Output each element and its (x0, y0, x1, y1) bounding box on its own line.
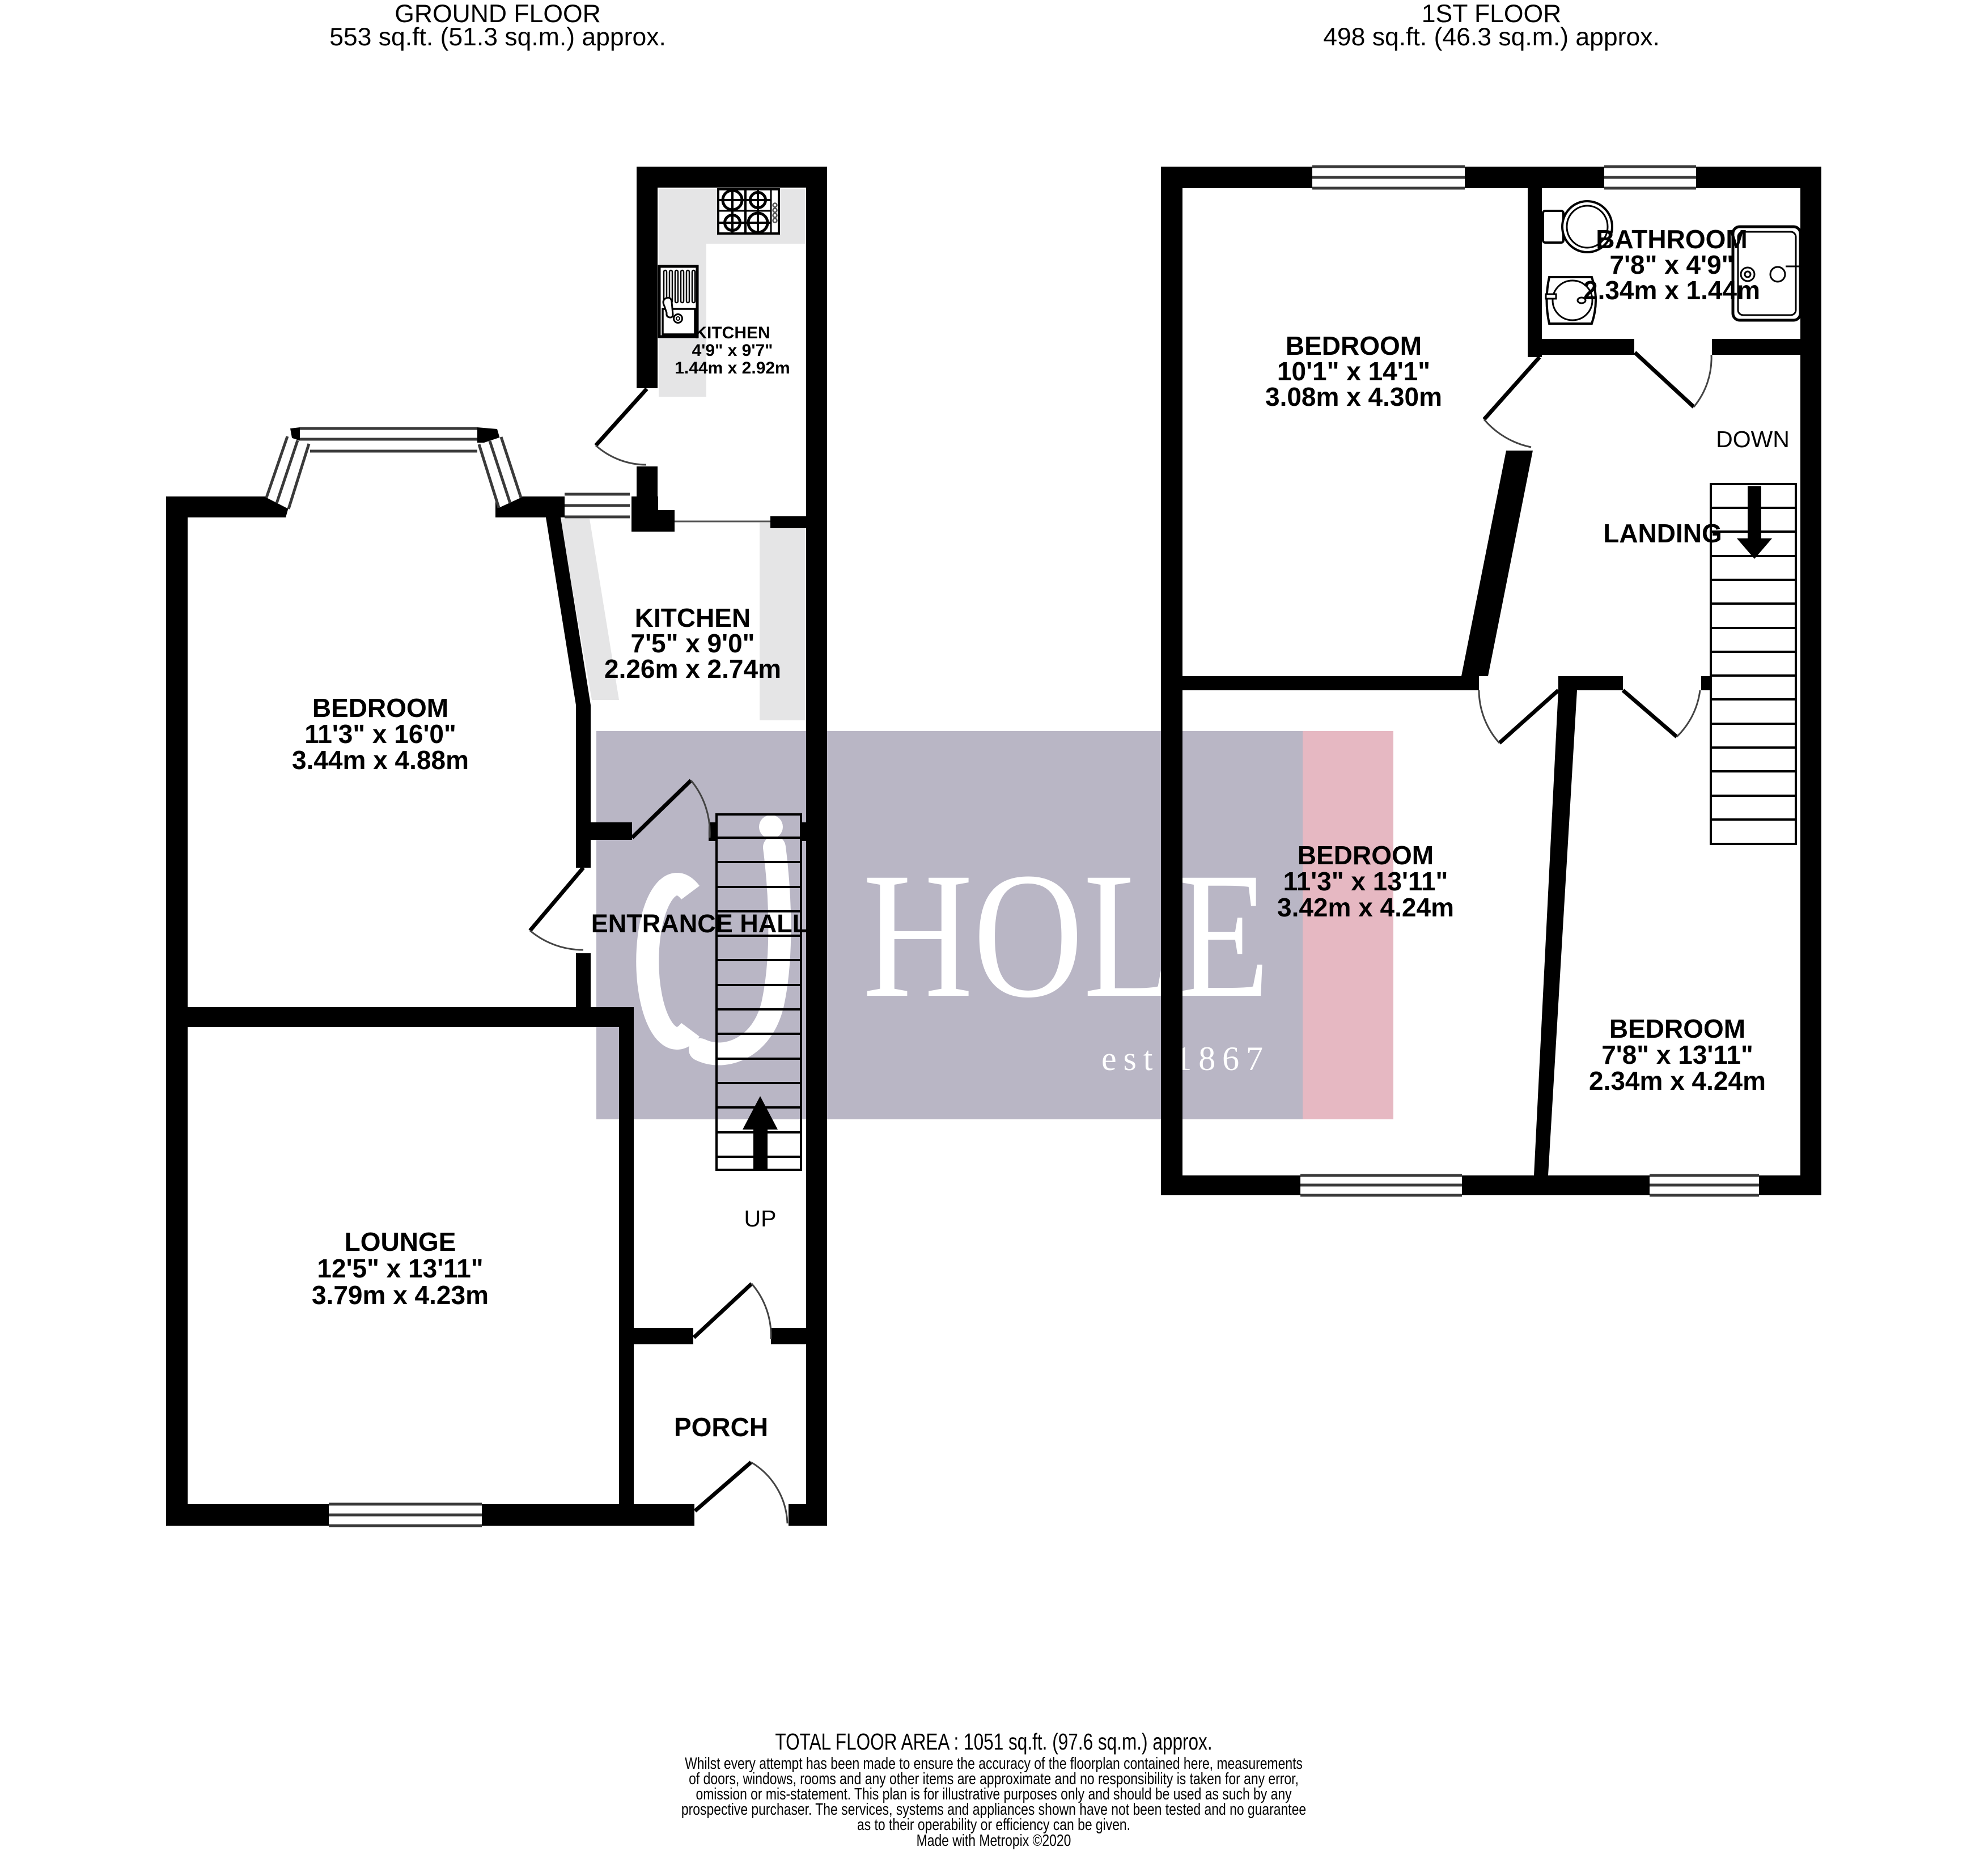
svg-text:PORCH: PORCH (674, 1412, 768, 1442)
svg-text:BEDROOM: BEDROOM (1609, 1014, 1745, 1043)
svg-text:3.42m x 4.24m: 3.42m x 4.24m (1277, 893, 1454, 922)
svg-text:TOTAL FLOOR AREA : 1051 sq.ft.: TOTAL FLOOR AREA : 1051 sq.ft. (97.6 sq.… (775, 1729, 1212, 1755)
svg-text:LANDING: LANDING (1603, 519, 1722, 548)
svg-text:11'3" x 13'11": 11'3" x 13'11" (1283, 867, 1448, 896)
svg-text:BEDROOM: BEDROOM (1298, 840, 1434, 870)
svg-text:3.79m x 4.23m: 3.79m x 4.23m (312, 1280, 489, 1310)
svg-text:4'9" x 9'7": 4'9" x 9'7" (692, 341, 773, 360)
svg-text:7'8" x 13'11": 7'8" x 13'11" (1601, 1040, 1753, 1069)
svg-text:DOWN: DOWN (1716, 426, 1790, 452)
svg-text:ENTRANCE HALL: ENTRANCE HALL (591, 909, 808, 938)
svg-text:12'5" x 13'11": 12'5" x 13'11" (317, 1254, 483, 1283)
svg-text:3.44m x 4.88m: 3.44m x 4.88m (292, 745, 469, 775)
svg-text:11'3" x 16'0": 11'3" x 16'0" (304, 719, 456, 749)
svg-text:2.26m x 2.74m: 2.26m x 2.74m (604, 654, 781, 683)
svg-text:BEDROOM: BEDROOM (312, 693, 448, 723)
svg-text:3.08m x 4.30m: 3.08m x 4.30m (1265, 382, 1442, 411)
svg-text:553 sq.ft. (51.3 sq.m.) approx: 553 sq.ft. (51.3 sq.m.) approx. (329, 23, 666, 51)
svg-text:1.44m x 2.92m: 1.44m x 2.92m (675, 359, 790, 377)
svg-text:2.34m x 1.44m: 2.34m x 1.44m (1583, 275, 1760, 305)
svg-text:Made with Metropix ©2020: Made with Metropix ©2020 (917, 1831, 1071, 1849)
svg-text:2.34m x 4.24m: 2.34m x 4.24m (1589, 1066, 1766, 1096)
svg-text:LOUNGE: LOUNGE (345, 1227, 456, 1256)
svg-text:HOLE: HOLE (863, 835, 1270, 1035)
svg-text:498 sq.ft. (46.3 sq.m.) approx: 498 sq.ft. (46.3 sq.m.) approx. (1323, 23, 1660, 51)
svg-text:UP: UP (744, 1205, 777, 1232)
svg-text:KITCHEN: KITCHEN (694, 324, 770, 342)
